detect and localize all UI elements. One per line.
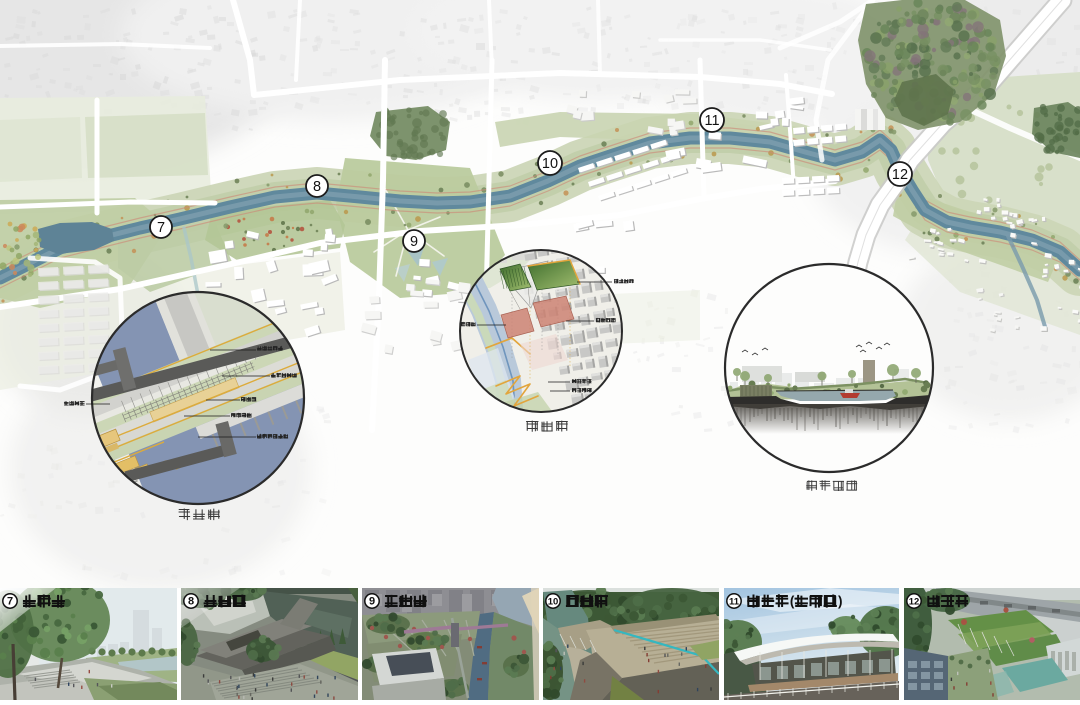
svg-text:): ) — [838, 594, 843, 609]
svg-text:8: 8 — [188, 596, 194, 608]
svg-text:11: 11 — [704, 113, 719, 129]
svg-text:12: 12 — [909, 597, 920, 608]
svg-text:10: 10 — [548, 597, 559, 608]
svg-text:11: 11 — [729, 597, 740, 608]
svg-text:12: 12 — [892, 167, 908, 183]
svg-text:9: 9 — [410, 234, 418, 250]
svg-text:9: 9 — [369, 596, 375, 608]
svg-text:10: 10 — [542, 156, 558, 172]
svg-text:7: 7 — [157, 220, 165, 236]
svg-text:7: 7 — [7, 596, 13, 608]
svg-text:8: 8 — [313, 179, 321, 195]
svg-text:(: ( — [790, 594, 795, 609]
